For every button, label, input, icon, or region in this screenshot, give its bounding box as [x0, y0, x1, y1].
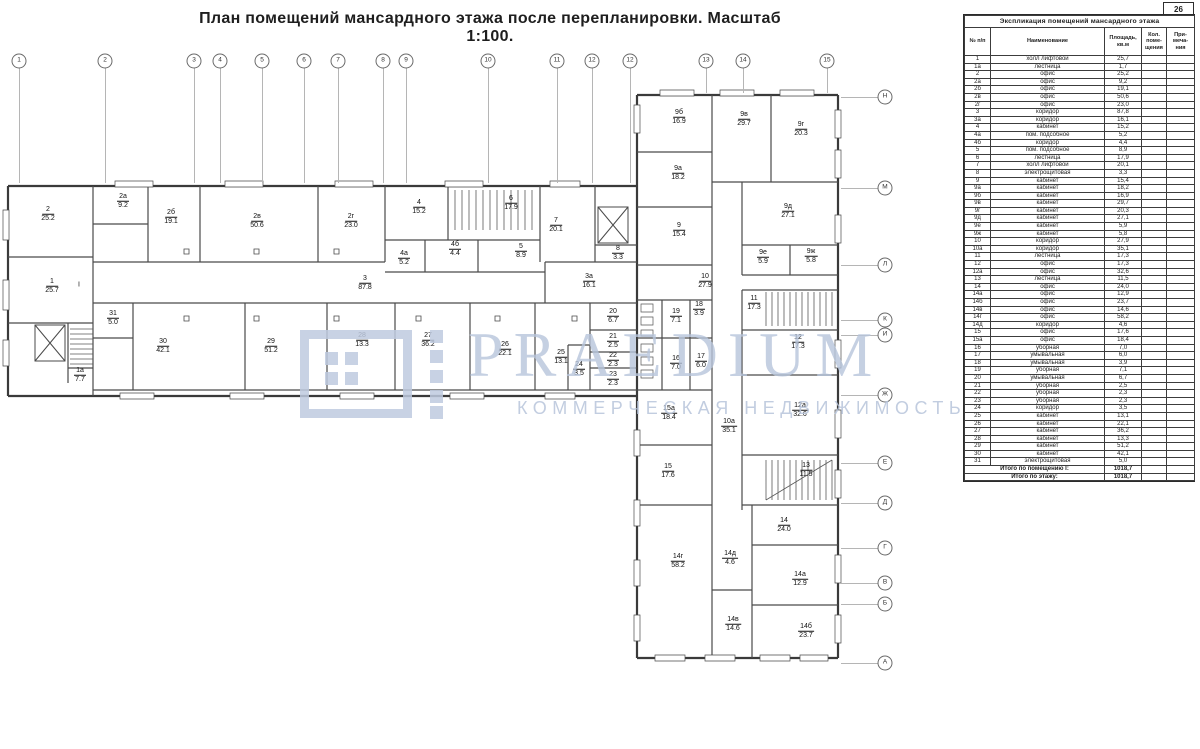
room-number: 19: [670, 308, 682, 317]
room-area: 2.5: [607, 341, 619, 349]
table-cell: [1167, 352, 1195, 360]
room-label-19: 197.1: [670, 308, 682, 325]
room-area: 35.1: [721, 426, 737, 434]
room-label-14а: 14а12.9: [792, 571, 808, 588]
room-area: 2.3: [607, 360, 619, 368]
table-cell: умывальная: [991, 352, 1105, 360]
table-cell: 28: [965, 435, 991, 443]
room-label-9г: 9г20.3: [794, 121, 808, 138]
table-cell: 27: [965, 428, 991, 436]
table-cell: кабинет: [991, 435, 1105, 443]
table-cell: [1167, 223, 1195, 231]
table-cell: уборная: [991, 344, 1105, 352]
grid-row-bubble-А: А: [878, 656, 893, 671]
table-row: 4кабинет15,2: [965, 124, 1195, 132]
room-label-21: 212.5: [607, 333, 619, 350]
grid-leader-line: [220, 68, 221, 183]
explication-title: Экспликация помещений мансардного этажа: [965, 16, 1195, 28]
room-area: 32.6: [792, 410, 808, 418]
grid-column-bubble-3: 3: [187, 54, 202, 69]
grid-row-bubble-Б: Б: [878, 597, 893, 612]
elevator-shaft-center: [598, 207, 628, 243]
room-area: 23.0: [344, 221, 358, 229]
table-cell: Итого по помещению I:: [965, 466, 1105, 474]
table-cell: [1167, 154, 1195, 162]
table-cell: 10: [965, 238, 991, 246]
room-area: 17.6: [661, 471, 675, 479]
table-cell: 5,8: [1105, 230, 1142, 238]
table-cell: [1167, 261, 1195, 269]
room-area: 29.7: [737, 119, 751, 127]
table-cell: [1142, 352, 1167, 360]
grid-column-bubble-10: 10: [481, 54, 496, 69]
grid-row-bubble-Ж: Ж: [878, 388, 893, 403]
table-cell: [1167, 306, 1195, 314]
table-cell: 4б: [965, 139, 991, 147]
table-cell: офис: [991, 93, 1105, 101]
grid-row-bubble-М: М: [878, 181, 893, 196]
table-row: 1алестница1,7: [965, 63, 1195, 71]
table-cell: [1167, 458, 1195, 466]
room-number: 10: [699, 273, 711, 282]
stairs-west: [70, 329, 93, 364]
table-cell: [1142, 109, 1167, 117]
table-row: 2бофис19,1: [965, 86, 1195, 94]
room-label-26: 2622.1: [498, 341, 512, 358]
table-cell: офис: [991, 268, 1105, 276]
room-number: 11: [748, 295, 760, 304]
room-area: 6.7: [607, 316, 619, 324]
table-cell: [1142, 268, 1167, 276]
room-area: 12.9: [792, 579, 808, 587]
table-cell: 8,9: [1105, 147, 1142, 155]
table-row: 13лестница11,5: [965, 276, 1195, 284]
table-cell: пом. подсобное: [991, 131, 1105, 139]
table-cell: [1167, 382, 1195, 390]
table-cell: [1142, 139, 1167, 147]
room-number: 9б: [673, 109, 685, 118]
grid-column-bubble-2: 2: [98, 54, 113, 69]
table-cell: 2,5: [1105, 382, 1142, 390]
table-cell: [1167, 177, 1195, 185]
room-label-9а: 9а18.2: [671, 165, 685, 182]
room-label-23: 232.3: [607, 371, 619, 388]
table-cell: 1,7: [1105, 63, 1142, 71]
column-header-4: При-меча-ния: [1167, 28, 1195, 56]
table-row: 12офис17,3: [965, 261, 1195, 269]
table-cell: [1167, 435, 1195, 443]
room-area: 4.6: [722, 558, 738, 566]
room-label-25: 2513.1: [554, 349, 568, 366]
room-area: 17.3: [747, 303, 761, 311]
table-cell: [1167, 230, 1195, 238]
grid-column-bubble-15: 15: [820, 54, 835, 69]
table-cell: [1167, 314, 1195, 322]
table-cell: 6,7: [1105, 374, 1142, 382]
table-cell: кабинет: [991, 443, 1105, 451]
table-cell: [1167, 473, 1195, 481]
table-cell: [1167, 71, 1195, 79]
table-cell: коридор: [991, 116, 1105, 124]
room-area: 17.3: [791, 342, 805, 350]
stairs-11: [766, 292, 832, 326]
table-cell: электрощитовая: [991, 458, 1105, 466]
room-label-27: 2736.2: [421, 332, 435, 349]
table-cell: [1142, 443, 1167, 451]
table-cell: 3: [965, 109, 991, 117]
table-row: 2офис25,2: [965, 71, 1195, 79]
table-cell: 5: [965, 147, 991, 155]
table-cell: 29: [965, 443, 991, 451]
table-cell: 16: [965, 344, 991, 352]
grid-column-bubble-9: 9: [399, 54, 414, 69]
room-label-14д: 14д4.6: [722, 550, 738, 567]
room-number: I: [73, 281, 85, 289]
room-number: 6: [505, 195, 517, 204]
room-area: 7.7: [74, 375, 86, 383]
room-label-2в: 2в50.6: [250, 213, 264, 230]
table-cell: 15: [965, 329, 991, 337]
stairs-6: [455, 190, 532, 230]
grid-leader-line: [841, 320, 878, 321]
table-cell: [1142, 329, 1167, 337]
elevator-shaft-west: [35, 325, 65, 361]
table-cell: [1167, 253, 1195, 261]
room-label-2а: 2а9.2: [117, 193, 129, 210]
grid-row-bubble-И: И: [878, 328, 893, 343]
table-cell: кабинет: [991, 428, 1105, 436]
table-cell: 16,1: [1105, 116, 1142, 124]
table-cell: Итого по этажу:: [965, 473, 1105, 481]
table-cell: 9: [965, 177, 991, 185]
room-number: 31: [107, 310, 119, 319]
table-row: 10акоридор35,1: [965, 245, 1195, 253]
room-number: 7: [550, 217, 562, 226]
room-number: 9д: [782, 203, 794, 212]
room-label-29: 2951.2: [264, 338, 278, 355]
interior-walls-west-wing: [8, 186, 637, 396]
table-cell: [1167, 321, 1195, 329]
table-cell: [1142, 321, 1167, 329]
room-label-24: 243.5: [573, 361, 585, 378]
table-cell: [1167, 93, 1195, 101]
room-area: 14.6: [725, 624, 741, 632]
table-cell: 31: [965, 458, 991, 466]
table-row: 20умывальная6,7: [965, 374, 1195, 382]
explication-table: Экспликация помещений мансардного этажа …: [963, 14, 1195, 482]
table-row: 16уборная7,0: [965, 344, 1195, 352]
table-cell: [1142, 412, 1167, 420]
table-row: 14гофис58,2: [965, 314, 1195, 322]
room-number: 12: [792, 334, 804, 343]
table-cell: [1142, 374, 1167, 382]
room-label-3а: 3а16.1: [582, 273, 596, 290]
room-number: 28: [356, 332, 368, 341]
table-cell: [1142, 420, 1167, 428]
table-cell: 24,0: [1105, 283, 1142, 291]
room-label-7: 720.1: [549, 217, 563, 234]
room-number: 4б: [449, 241, 461, 250]
table-cell: [1142, 458, 1167, 466]
room-label-17: 176.0: [695, 353, 707, 370]
table-cell: 9д: [965, 215, 991, 223]
table-cell: 19,1: [1105, 86, 1142, 94]
table-cell: 6,0: [1105, 352, 1142, 360]
table-row: 2вофис50,6: [965, 93, 1195, 101]
room-label-28: 2813.3: [355, 332, 369, 349]
table-cell: [1142, 245, 1167, 253]
table-cell: 4: [965, 124, 991, 132]
room-area: 13.1: [554, 357, 568, 365]
room-number: 8: [612, 245, 624, 254]
room-area: 42.1: [156, 346, 170, 354]
table-cell: 14г: [965, 314, 991, 322]
table-row: 9кабинет15,4: [965, 177, 1195, 185]
table-cell: [1142, 314, 1167, 322]
table-cell: [1142, 359, 1167, 367]
table-cell: [1167, 428, 1195, 436]
table-cell: 8: [965, 169, 991, 177]
table-cell: [1167, 299, 1195, 307]
room-area: 13.3: [355, 340, 369, 348]
table-cell: 2г: [965, 101, 991, 109]
table-row: 9бкабинет16,9: [965, 192, 1195, 200]
room-area: 5.0: [107, 318, 119, 326]
grid-leader-line: [488, 68, 489, 183]
table-cell: 1: [965, 56, 991, 64]
table-cell: 13,1: [1105, 412, 1142, 420]
table-row: 9екабинет5,9: [965, 223, 1195, 231]
room-label-15: 1517.6: [661, 463, 675, 480]
room-area: 7.0: [670, 363, 682, 371]
grid-row-bubble-Д: Д: [878, 496, 893, 511]
table-cell: кабинет: [991, 420, 1105, 428]
table-row: 7холл лифтовой20,1: [965, 162, 1195, 170]
table-cell: [1142, 367, 1167, 375]
table-cell: 87,8: [1105, 109, 1142, 117]
table-cell: [1167, 238, 1195, 246]
table-cell: [1167, 412, 1195, 420]
table-cell: 3,3: [1105, 169, 1142, 177]
table-cell: [1167, 192, 1195, 200]
table-cell: офис: [991, 78, 1105, 86]
column-header-0: № п/п: [965, 28, 991, 56]
room-label-9ж: 9ж5.8: [805, 248, 818, 265]
grid-row-bubble-К: К: [878, 313, 893, 328]
grid-row-bubble-Г: Г: [878, 541, 893, 556]
table-cell: 10а: [965, 245, 991, 253]
table-row: 12аофис32,6: [965, 268, 1195, 276]
table-cell: 27,1: [1105, 215, 1142, 223]
table-cell: офис: [991, 71, 1105, 79]
table-cell: [1142, 162, 1167, 170]
room-area: 7.1: [670, 316, 682, 324]
table-cell: [1142, 291, 1167, 299]
room-number: 30: [157, 338, 169, 347]
room-number: 12а: [792, 402, 808, 411]
table-cell: [1167, 268, 1195, 276]
room-label-9в: 9в29.7: [737, 111, 751, 128]
table-cell: [1142, 283, 1167, 291]
table-cell: 22: [965, 390, 991, 398]
grid-leader-line: [383, 68, 384, 183]
grid-row-bubble-Л: Л: [878, 258, 893, 273]
table-cell: [1167, 200, 1195, 208]
table-cell: 17: [965, 352, 991, 360]
table-cell: 15а: [965, 336, 991, 344]
grid-leader-line: [841, 188, 878, 189]
table-cell: 17,3: [1105, 253, 1142, 261]
table-cell: 4,4: [1105, 139, 1142, 147]
table-cell: [1167, 109, 1195, 117]
table-cell: [1142, 306, 1167, 314]
room-area: 24.0: [777, 525, 791, 533]
table-cell: 12: [965, 261, 991, 269]
room-label-4а: 4а5.2: [398, 250, 410, 267]
room-label-12а: 12а32.6: [792, 402, 808, 419]
grid-leader-line: [841, 663, 878, 664]
table-cell: [1167, 374, 1195, 382]
room-label-1: 125.7: [45, 278, 59, 295]
table-cell: 2,3: [1105, 390, 1142, 398]
room-number: 1а: [74, 367, 86, 376]
table-row: 3коридор87,8: [965, 109, 1195, 117]
grid-leader-line: [592, 68, 593, 183]
table-row: 28кабинет13,3: [965, 435, 1195, 443]
room-area: 2.3: [607, 379, 619, 387]
table-cell: [1142, 223, 1167, 231]
room-number: 3: [359, 275, 371, 284]
table-row: 21уборная2,5: [965, 382, 1195, 390]
table-cell: коридор: [991, 321, 1105, 329]
table-cell: [1167, 147, 1195, 155]
table-cell: 15,4: [1105, 177, 1142, 185]
table-cell: 11,5: [1105, 276, 1142, 284]
table-cell: [1167, 162, 1195, 170]
table-cell: [1142, 230, 1167, 238]
table-cell: офис: [991, 86, 1105, 94]
table-cell: 17,9: [1105, 154, 1142, 162]
room-number: 14б: [798, 623, 814, 632]
table-cell: 18: [965, 359, 991, 367]
table-row: 18умывальная3,9: [965, 359, 1195, 367]
room-area: 5.2: [398, 258, 410, 266]
room-area: 25.2: [41, 214, 55, 222]
table-cell: коридор: [991, 109, 1105, 117]
table-cell: [1142, 390, 1167, 398]
table-cell: [1142, 86, 1167, 94]
table-cell: [1167, 397, 1195, 405]
table-row: 14бофис23,7: [965, 299, 1195, 307]
table-cell: [1167, 329, 1195, 337]
total-row: Итого по этажу:1018,7: [965, 473, 1195, 481]
room-number: 18: [693, 301, 705, 310]
table-cell: 5,2: [1105, 131, 1142, 139]
room-label-14г: 14г58.2: [671, 553, 685, 570]
column-header-3: Кол. поме-щения: [1142, 28, 1167, 56]
table-cell: кабинет: [991, 124, 1105, 132]
table-cell: уборная: [991, 390, 1105, 398]
table-cell: 9а: [965, 185, 991, 193]
table-row: 14офис24,0: [965, 283, 1195, 291]
table-cell: [1142, 63, 1167, 71]
table-cell: 20,3: [1105, 207, 1142, 215]
room-label-2: 225.2: [41, 206, 55, 223]
grid-column-bubble-13: 13: [699, 54, 714, 69]
column-header-2: Площадь, кв.м: [1105, 28, 1142, 56]
room-number: 13: [800, 462, 812, 471]
table-cell: 20,1: [1105, 162, 1142, 170]
table-cell: 12,9: [1105, 291, 1142, 299]
table-cell: 11: [965, 253, 991, 261]
table-cell: 14в: [965, 306, 991, 314]
table-cell: [1142, 382, 1167, 390]
table-cell: умывальная: [991, 359, 1105, 367]
room-number: 9а: [672, 165, 684, 174]
table-cell: [1167, 420, 1195, 428]
room-label-4: 415.2: [412, 199, 426, 216]
grid-column-bubble-12: 12: [585, 54, 600, 69]
table-cell: [1167, 169, 1195, 177]
table-header-row: № п/пНаименованиеПлощадь, кв.мКол. поме-…: [965, 28, 1195, 56]
table-cell: [1142, 147, 1167, 155]
room-area: 15.2: [412, 207, 426, 215]
table-cell: 30: [965, 450, 991, 458]
table-row: 14дкоридор4,6: [965, 321, 1195, 329]
table-cell: 32,6: [1105, 268, 1142, 276]
table-cell: [1167, 215, 1195, 223]
table-cell: [1142, 93, 1167, 101]
total-row: Итого по помещению I:1018,7: [965, 466, 1195, 474]
table-cell: [1167, 245, 1195, 253]
room-number: 4а: [398, 250, 410, 259]
table-cell: 5,9: [1105, 223, 1142, 231]
room-number: 4: [413, 199, 425, 208]
table-cell: умывальная: [991, 374, 1105, 382]
room-area: 51.2: [264, 346, 278, 354]
grid-column-bubble-6: 6: [297, 54, 312, 69]
room-label-10: 1027.9: [698, 273, 712, 290]
room-label-I: I: [73, 281, 85, 289]
room-label-2б: 2б19.1: [164, 209, 178, 226]
room-number: 25: [555, 349, 567, 358]
room-area: 3.9: [693, 309, 705, 317]
table-cell: [1142, 78, 1167, 86]
table-cell: [1167, 443, 1195, 451]
table-cell: офис: [991, 314, 1105, 322]
room-area: 5.9: [757, 257, 769, 265]
room-number: 14в: [725, 616, 741, 625]
table-cell: кабинет: [991, 223, 1105, 231]
table-cell: уборная: [991, 397, 1105, 405]
room-label-9д: 9д27.1: [781, 203, 795, 220]
table-cell: 22,1: [1105, 420, 1142, 428]
structural-columns: [184, 249, 577, 321]
grid-leader-line: [105, 68, 106, 183]
table-cell: 3,5: [1105, 405, 1142, 413]
table-cell: 18,2: [1105, 185, 1142, 193]
table-cell: [1167, 450, 1195, 458]
table-cell: офис: [991, 101, 1105, 109]
room-label-31: 315.0: [107, 310, 119, 327]
table-cell: 7,1: [1105, 367, 1142, 375]
room-area: 25.7: [45, 286, 59, 294]
grid-leader-line: [841, 265, 878, 266]
table-cell: лестница: [991, 154, 1105, 162]
table-cell: 14: [965, 283, 991, 291]
table-cell: коридор: [991, 405, 1105, 413]
table-cell: 27,9: [1105, 238, 1142, 246]
